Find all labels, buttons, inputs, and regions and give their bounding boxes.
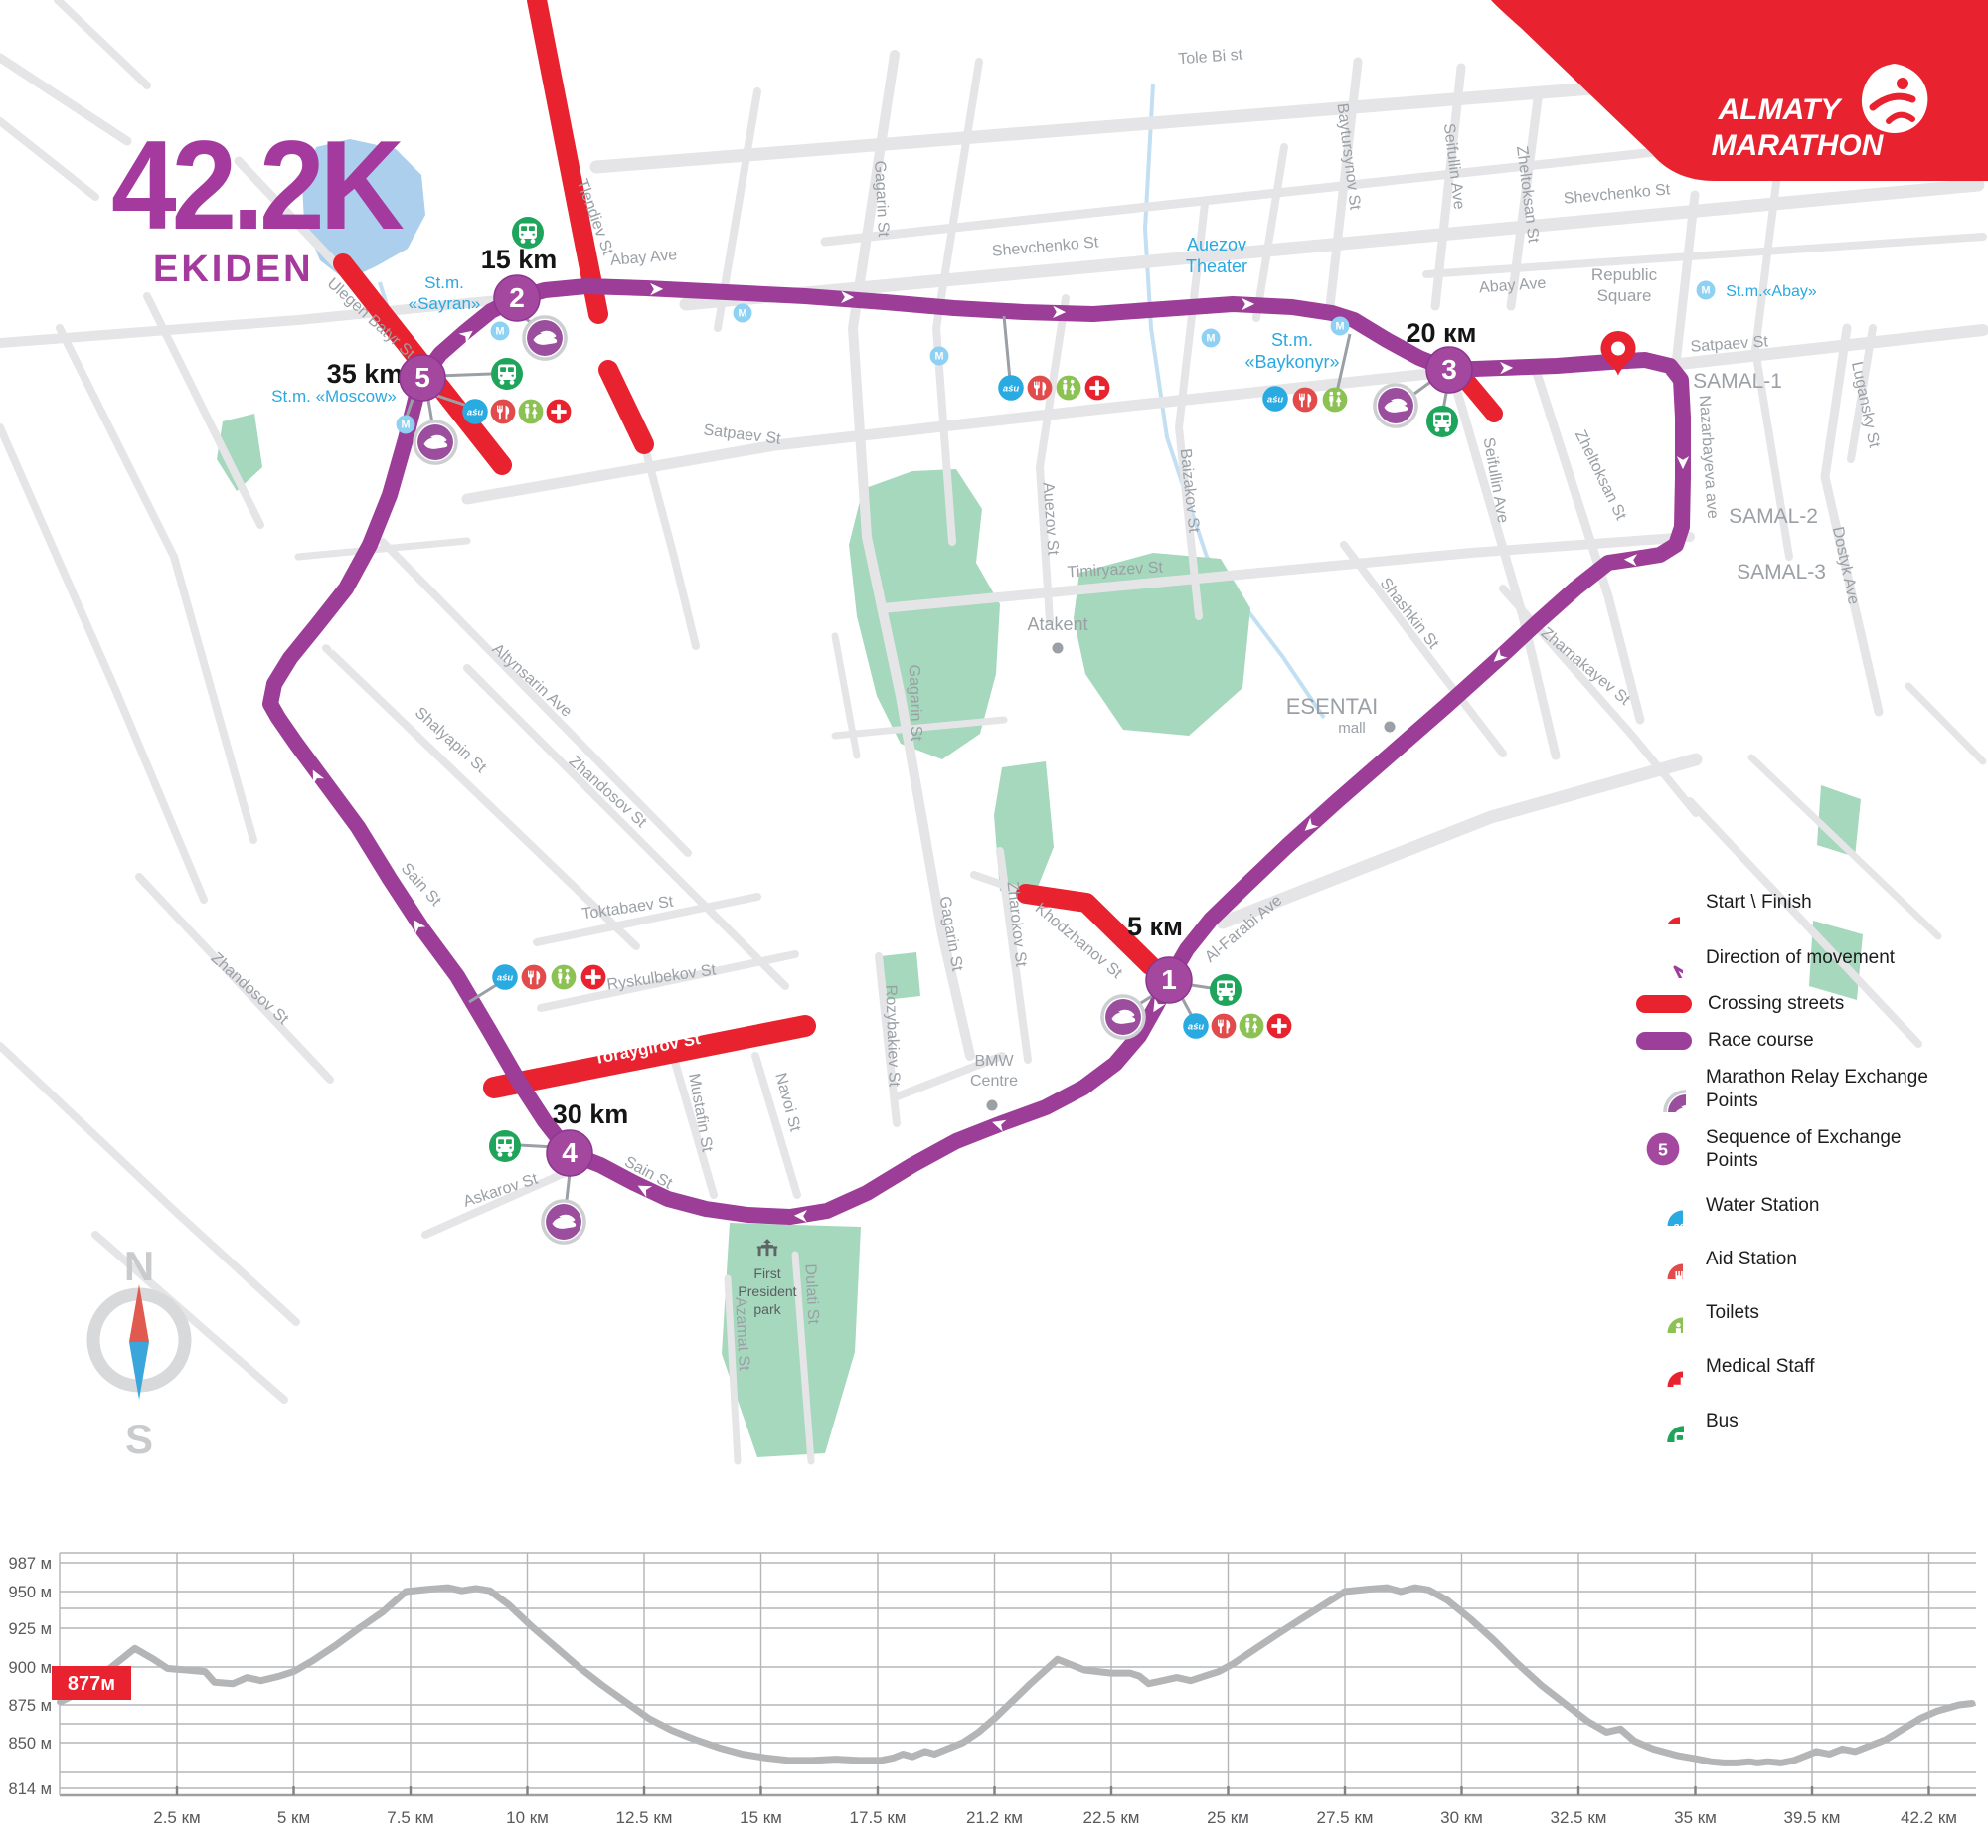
poi-label: ESENTAI	[1286, 694, 1379, 719]
start-elevation-badge: 877м	[52, 1666, 131, 1700]
poi-label: First	[753, 1265, 780, 1281]
km-marker-label: 35 km	[327, 359, 404, 389]
legend-label: Bus	[1706, 1410, 1739, 1432]
bus-icon	[1210, 974, 1242, 1006]
aid-station-icon	[1212, 1014, 1237, 1039]
poi-label: Atakent	[1027, 614, 1087, 634]
metro-icon	[1331, 317, 1350, 336]
metro-icon	[1202, 329, 1221, 348]
legend-label: Toilets	[1706, 1301, 1759, 1324]
km-marker-label: 5 км	[1127, 912, 1183, 941]
street-label: Dulati St	[801, 1263, 821, 1325]
aid-station-icon	[1636, 1240, 1690, 1279]
svg-text:877м: 877м	[68, 1673, 115, 1695]
water-station-icon	[492, 964, 518, 990]
y-axis-label: 987 м	[9, 1555, 52, 1573]
y-axis-label: 900 м	[9, 1659, 52, 1677]
legend-item-aid-station: Aid Station	[1636, 1240, 1974, 1279]
medical-icon	[1085, 376, 1110, 401]
x-axis-label: 2.5 км	[153, 1808, 200, 1827]
aid-station-icon	[1293, 388, 1318, 413]
street-label: SAMAL-2	[1729, 505, 1818, 528]
bus-icon	[489, 1130, 521, 1162]
legend-label: Sequence of Exchange Points	[1706, 1126, 1944, 1172]
legend-item-direction: Direction of movement	[1636, 938, 1974, 978]
race-course-icon	[1636, 1032, 1692, 1050]
start-finish-icon	[1636, 881, 1690, 924]
poi-label: park	[753, 1301, 781, 1317]
water-station-icon	[1262, 386, 1288, 412]
water-station-icon	[1183, 1013, 1209, 1039]
toilets-icon	[1323, 388, 1348, 413]
legend-item-relay-exchange: Marathon Relay Exchange Points	[1636, 1066, 1974, 1111]
poi-label: President	[738, 1283, 796, 1299]
poi-label: Centre	[970, 1073, 1018, 1090]
poi-label: St.m.«Abay»	[1726, 283, 1817, 300]
brand-name-line2: MARATHON	[1712, 129, 1885, 162]
metro-icon	[491, 322, 510, 341]
compass-south-label: S	[125, 1416, 153, 1462]
street-label: Rozybakiev St	[882, 984, 903, 1087]
medical-icon	[1636, 1347, 1690, 1387]
bus-icon	[491, 358, 523, 390]
connector	[438, 374, 491, 376]
compass-north-label: N	[124, 1243, 154, 1289]
race-distance: 42.2K	[111, 122, 400, 249]
exchange-point-4: 4	[547, 1130, 592, 1176]
poi-label: Republic	[1591, 265, 1658, 284]
legend-item-sequence: 5 Sequence of Exchange Points	[1636, 1126, 1974, 1172]
x-axis-label: 35 км	[1674, 1808, 1717, 1827]
y-axis-label: 925 м	[9, 1620, 52, 1638]
poi-label: St.m.	[424, 273, 464, 292]
legend-label: Crossing streets	[1708, 992, 1844, 1015]
x-axis-label: 7.5 км	[387, 1808, 433, 1827]
legend-label: Marathon Relay Exchange Points	[1706, 1066, 1944, 1111]
aid-station-icon	[1028, 376, 1053, 401]
relay-exchange-icon	[1102, 996, 1144, 1038]
poi-dot	[987, 1100, 998, 1111]
poi-label: Square	[1597, 286, 1652, 305]
relay-exchange-icon	[524, 317, 566, 359]
street-label: Gagarin St	[906, 664, 925, 742]
legend-item-start-finish: Start \ Finish	[1636, 881, 1974, 924]
y-axis-label: 814 м	[9, 1780, 52, 1798]
poi-label: «Sayran»	[409, 294, 481, 313]
poi-dot	[1053, 643, 1064, 654]
toilets-icon	[1240, 1014, 1264, 1039]
poi-label: mall	[1338, 720, 1366, 737]
x-axis-label: 12.5 км	[616, 1808, 673, 1827]
street-label: SAMAL-1	[1693, 370, 1782, 393]
medical-icon	[581, 965, 606, 990]
svg-text:3: 3	[1441, 354, 1457, 385]
poi-label: St.m.	[1271, 330, 1313, 350]
toilets-icon	[519, 400, 544, 424]
x-axis-label: 10 км	[506, 1808, 549, 1827]
medical-icon	[547, 400, 572, 424]
sequence-icon: 5	[1636, 1128, 1690, 1170]
legend-item-crossing-streets: Crossing streets	[1636, 992, 1974, 1015]
km-marker-label: 15 km	[481, 245, 558, 274]
y-axis-label: 850 м	[9, 1735, 52, 1753]
legend-label: Race course	[1708, 1029, 1814, 1052]
water-station-icon	[998, 375, 1024, 401]
race-title-block: 42.2K EKIDEN	[111, 127, 400, 291]
svg-text:2: 2	[509, 282, 525, 313]
x-axis-label: 30 км	[1440, 1808, 1483, 1827]
x-axis-label: 32.5 км	[1551, 1808, 1607, 1827]
km-marker-label: 30 km	[553, 1099, 629, 1129]
toilets-icon	[1636, 1293, 1690, 1333]
legend-item-toilets: Toilets	[1636, 1293, 1974, 1333]
exchange-point-2: 2	[494, 275, 540, 321]
brand-name-line1: ALMATY	[1718, 93, 1844, 126]
x-axis-label: 5 км	[277, 1808, 310, 1827]
almaty-marathon-course-poster: { "title": {"distance": "42.2K", "type":…	[0, 0, 1988, 1848]
x-axis-label: 42.2 км	[1901, 1808, 1957, 1827]
relay-exchange-icon	[1636, 1067, 1690, 1112]
metro-icon	[397, 416, 415, 434]
exchange-point-5: 5	[400, 355, 445, 401]
crossing-streets-icon	[1636, 995, 1692, 1013]
direction-icon	[1636, 938, 1690, 978]
poi-label: St.m. «Moscow»	[271, 387, 397, 406]
relay-exchange-icon	[414, 421, 456, 463]
x-axis-label: 21.2 км	[966, 1808, 1023, 1827]
legend-item-medical: Medical Staff	[1636, 1347, 1974, 1387]
poi-label: Theater	[1186, 256, 1247, 276]
bus-icon	[1426, 406, 1458, 437]
poi-label: BMW	[974, 1053, 1014, 1070]
x-axis-label: 39.5 км	[1784, 1808, 1841, 1827]
legend-item-bus: Bus	[1636, 1401, 1974, 1442]
metro-icon	[1697, 281, 1716, 300]
svg-text:5: 5	[1658, 1139, 1668, 1159]
poi-label: «Baykonyr»	[1244, 352, 1339, 372]
x-axis-label: 15 км	[740, 1808, 782, 1827]
exchange-point-1: 1	[1146, 957, 1192, 1003]
legend-item-water-station: Water Station	[1636, 1186, 1974, 1226]
bus-icon	[1636, 1401, 1690, 1442]
y-axis-label: 950 м	[9, 1584, 52, 1601]
map-legend: Start \ Finish Direction of movement Cro…	[1636, 881, 1974, 1442]
elevation-chart: 2.5 км5 км7.5 км10 км12.5 км15 км17.5 км…	[0, 1531, 1988, 1848]
svg-text:1: 1	[1161, 964, 1177, 995]
x-axis-label: 27.5 км	[1317, 1808, 1374, 1827]
water-station-icon	[1636, 1186, 1690, 1226]
poi-label: Auezov	[1187, 235, 1246, 254]
svg-text:5: 5	[414, 362, 430, 393]
metro-icon	[930, 347, 949, 366]
legend-label: Start \ Finish	[1706, 891, 1812, 914]
x-axis-label: 25 км	[1207, 1808, 1249, 1827]
bus-icon	[512, 217, 544, 249]
x-axis-label: 22.5 км	[1083, 1808, 1140, 1827]
relay-exchange-icon	[543, 1201, 584, 1243]
x-axis-label: 17.5 км	[850, 1808, 907, 1827]
aid-station-icon	[522, 965, 547, 990]
svg-text:4: 4	[562, 1137, 578, 1168]
legend-label: Water Station	[1706, 1194, 1819, 1217]
legend-label: Aid Station	[1706, 1248, 1797, 1270]
km-marker-label: 20 км	[1406, 318, 1476, 348]
toilets-icon	[552, 965, 577, 990]
relay-exchange-icon	[1375, 385, 1416, 426]
y-axis-label: 875 м	[9, 1697, 52, 1715]
metro-icon	[734, 304, 752, 323]
aid-station-icon	[491, 400, 516, 424]
poi-dot	[1385, 722, 1396, 733]
street-label: SAMAL-3	[1737, 561, 1826, 584]
legend-item-race-course: Race course	[1636, 1029, 1974, 1052]
legend-label: Medical Staff	[1706, 1355, 1814, 1378]
legend-label: Direction of movement	[1706, 946, 1895, 969]
water-station-icon	[462, 399, 488, 424]
toilets-icon	[1057, 376, 1081, 401]
exchange-point-3: 3	[1426, 347, 1472, 393]
medical-icon	[1267, 1014, 1292, 1039]
